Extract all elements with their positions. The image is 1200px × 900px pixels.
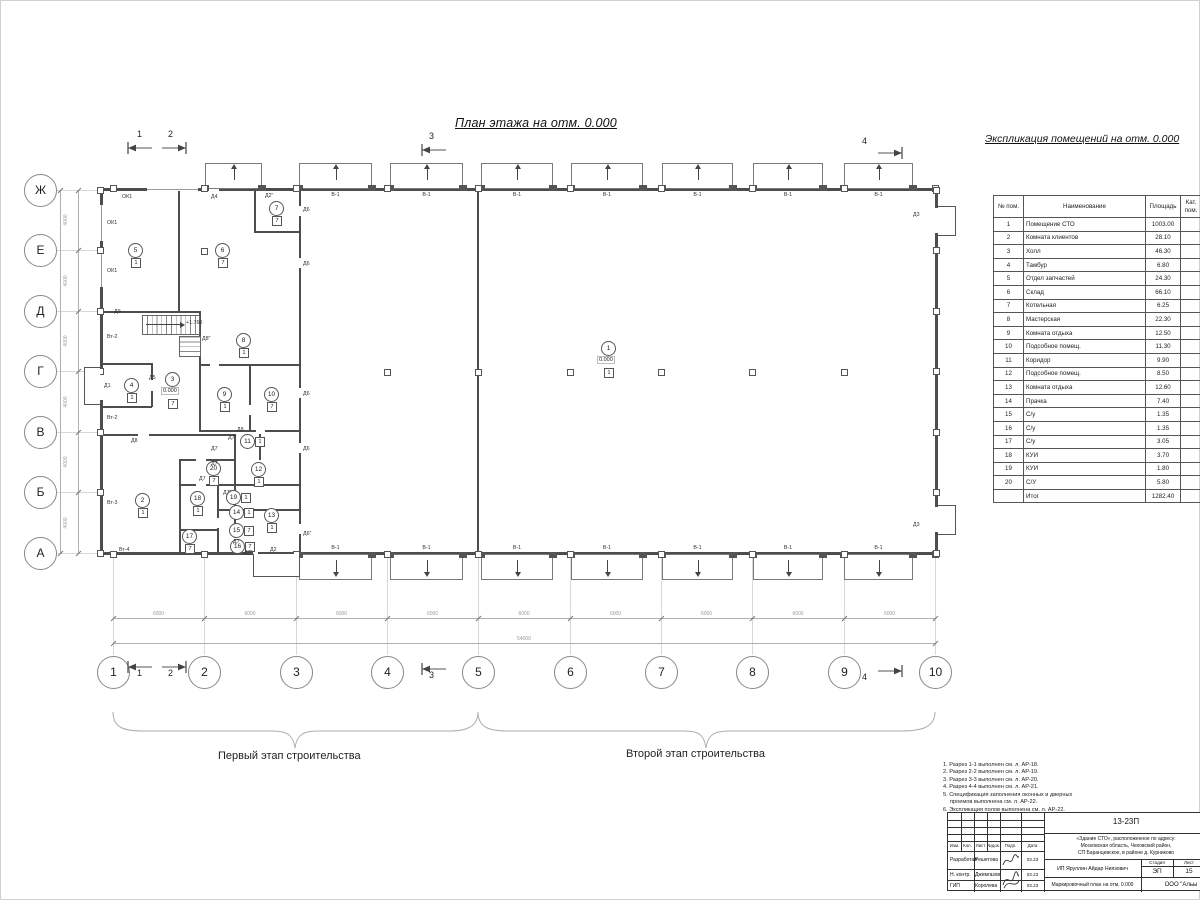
plan-label: ОК1: [107, 268, 117, 274]
dim-line: [60, 190, 61, 553]
tb-date-ncontr: 03.23: [1021, 872, 1044, 877]
tb-object-line1: «Здание СТО», расположенное по адресу:: [1046, 836, 1200, 843]
plan-label: Д6: [303, 261, 310, 267]
gate-arrow: [517, 168, 518, 180]
room-number: 14: [229, 505, 244, 520]
floor-type-mark: 1: [244, 508, 254, 518]
section-marker-label: 3: [429, 131, 434, 141]
axis-grid-line: [478, 556, 479, 655]
tb-project-code: 13-23П: [1044, 817, 1200, 826]
tb-date-gip: 03.23: [1021, 883, 1044, 888]
gate-pier: [639, 185, 647, 191]
wall-segment: [199, 430, 300, 432]
wall-segment: [299, 191, 301, 552]
column-mark: [658, 185, 665, 192]
dim-span-label: 6000: [875, 611, 905, 617]
column-mark: [97, 429, 104, 436]
section-marker-label: 1: [137, 129, 142, 139]
axis-grid-line: [204, 556, 205, 655]
door-opening: [298, 388, 302, 398]
gate-arrow-head: [424, 164, 430, 169]
tb-sheet-label: Лист: [1173, 860, 1200, 865]
gate-pier: [368, 552, 376, 558]
door-opening: [196, 459, 206, 462]
door-opening: [138, 434, 149, 437]
tb-name-gip: Королева: [975, 883, 997, 889]
floor-type-mark: 7: [272, 216, 282, 226]
column-mark: [567, 369, 574, 376]
gate-arrow-head: [424, 572, 430, 577]
column-mark: [841, 369, 848, 376]
axis-bubble-letter: Е: [24, 234, 57, 267]
wall-segment: [254, 231, 300, 233]
dim-span-label: 4000: [63, 329, 69, 353]
wall-segment: [100, 363, 152, 365]
gate-arrow-head: [515, 572, 521, 577]
column-mark: [201, 185, 208, 192]
axis-bubble-number: 2: [188, 656, 221, 689]
room-number: 4: [124, 378, 139, 393]
gate-label: В-1: [869, 192, 889, 198]
gate-label: В-1: [507, 192, 527, 198]
plan-label: +1.760: [186, 320, 202, 326]
column-mark: [97, 308, 104, 315]
room-number: 17: [182, 529, 197, 544]
tb-col-kol: Кол.: [961, 843, 974, 848]
column-mark: [841, 551, 848, 558]
door-opening: [298, 206, 302, 216]
stair-arrow-head: [180, 322, 185, 328]
dim-span-label: 4000: [63, 450, 69, 474]
gate-pier: [729, 185, 737, 191]
dim-span-label: 6000: [601, 611, 631, 617]
gate-arrow: [879, 560, 880, 572]
stage1-label: Первый этап строительства: [218, 750, 361, 762]
plan-label: Д3: [913, 522, 920, 528]
gate-label: В-1: [597, 545, 617, 551]
column-mark: [384, 369, 391, 376]
plan-label: Д7: [211, 461, 218, 467]
room-number: 6: [215, 243, 230, 258]
gate-pier: [258, 185, 266, 191]
plan-label: Д7: [211, 446, 218, 452]
dim-span-label: 6000: [144, 611, 174, 617]
axis-bubble-letter: Ж: [24, 174, 57, 207]
room-number: 18: [190, 491, 205, 506]
floor-type-mark: 1: [127, 393, 137, 403]
floor-type-mark: 1: [131, 258, 141, 268]
plan-label: Д1: [104, 383, 111, 389]
gate-pier: [639, 552, 647, 558]
gate-arrow: [698, 168, 699, 180]
stair-flight: [179, 336, 201, 357]
column-mark: [933, 368, 940, 375]
room-number: 11: [240, 434, 255, 449]
room-number: 10: [264, 387, 279, 402]
gate-pier: [729, 552, 737, 558]
window-line: [147, 189, 198, 190]
room-number: 2: [135, 493, 150, 508]
floor-type-mark: 7: [168, 399, 178, 409]
dim-span-label: 4000: [63, 269, 69, 293]
tb-client: ИП Яруллин Айдар Ниязович: [1044, 866, 1141, 872]
column-mark: [749, 185, 756, 192]
room-number: 13: [264, 508, 279, 523]
gate-arrow-head: [695, 164, 701, 169]
gate-pier: [459, 552, 467, 558]
column-mark: [201, 248, 208, 255]
dim-line: [113, 618, 935, 619]
column-mark: [475, 551, 482, 558]
dim-span-label: 4000: [63, 390, 69, 414]
axis-bubble-letter: А: [24, 537, 57, 570]
dim-span-label: 6000: [692, 611, 722, 617]
axis-bubble-number: 9: [828, 656, 861, 689]
wall-segment: [100, 406, 152, 408]
gate-pier: [549, 185, 557, 191]
gate-label: В-1: [778, 192, 798, 198]
tb-col-podp: Подп.: [1000, 843, 1021, 848]
gate-arrow: [336, 560, 337, 572]
note-item: 2. Разрез 2-2 выполнен см. л. АР-19.: [943, 769, 1077, 776]
column-mark: [97, 187, 104, 194]
axis-bubble-number: 10: [919, 656, 952, 689]
gate-label: В-1: [417, 192, 437, 198]
column-mark: [749, 551, 756, 558]
column-mark: [841, 185, 848, 192]
gate-arrow-head: [605, 572, 611, 577]
drawing-sheet: План этажа на отм. 0.000 Экспликация пом…: [0, 0, 1200, 900]
door-opening: [298, 524, 302, 534]
tb-role-developer: Разработал: [950, 857, 977, 863]
floor-type-mark: 1: [241, 493, 251, 503]
axis-bubble-number: 8: [736, 656, 769, 689]
gate-label: В-1: [326, 545, 346, 551]
floor-type-mark: 1: [604, 368, 614, 378]
dim-span-label: 4000: [63, 511, 69, 535]
tb-stage-label: Стадия: [1141, 860, 1173, 865]
plan-label: Д8: [131, 438, 138, 444]
gate-arrow-head: [333, 164, 339, 169]
axis-bubble-number: 4: [371, 656, 404, 689]
column-mark: [933, 489, 940, 496]
tb-date-developer: 03.23: [1021, 857, 1044, 862]
plan-label: Д6: [303, 446, 310, 452]
gate-arrow: [427, 168, 428, 180]
floor-type-mark: 1: [220, 402, 230, 412]
entrance-porch: [84, 367, 100, 405]
tb-col-data: Дата: [1021, 843, 1044, 848]
door-opening: [298, 258, 302, 268]
column-mark: [475, 185, 482, 192]
signature-ncontr: [1001, 869, 1021, 891]
room-number: 5: [128, 243, 143, 258]
gate-arrow: [517, 560, 518, 572]
plan-label: Д2": [265, 193, 273, 199]
gate-label: В-1: [597, 192, 617, 198]
column-mark: [658, 369, 665, 376]
window-line: [101, 250, 102, 287]
gate-arrow-head: [605, 164, 611, 169]
column-mark: [384, 185, 391, 192]
gate-pier: [459, 185, 467, 191]
gate-arrow: [234, 168, 235, 180]
plan-label: Д7: [199, 476, 206, 482]
window-line: [101, 205, 102, 241]
column-mark: [97, 489, 104, 496]
section-marker: [418, 143, 448, 157]
room-number: 3: [165, 372, 180, 387]
dim-total-label: 54000: [504, 636, 544, 642]
section-marker: [160, 660, 190, 674]
column-mark: [110, 185, 117, 192]
level-mark: 0.000: [597, 356, 615, 364]
gate-arrow: [698, 560, 699, 572]
gate-arrow-head: [786, 572, 792, 577]
column-mark: [933, 247, 940, 254]
section-marker: [876, 664, 906, 678]
plan-label: Д7": [228, 435, 236, 441]
tb-role-ncontr: Н. контр.: [950, 872, 971, 878]
column-mark: [201, 551, 208, 558]
section-marker-label: 4: [862, 672, 867, 682]
floor-type-mark: 7: [209, 476, 219, 486]
gate-arrow: [607, 168, 608, 180]
plan-label: Вт-2: [107, 334, 118, 340]
column-mark: [384, 551, 391, 558]
gate-label: В-1: [688, 545, 708, 551]
gate-arrow: [788, 560, 789, 572]
column-mark: [567, 185, 574, 192]
plan-label: Д2: [270, 547, 277, 553]
dim-span-label: 6000: [418, 611, 448, 617]
axis-bubble-number: 7: [645, 656, 678, 689]
level-mark: 0.000: [161, 387, 179, 395]
gate-label: В-1: [778, 545, 798, 551]
gate-pier: [909, 185, 917, 191]
plan-label: Д9: [114, 309, 121, 315]
tb-object-line2: Московская область, Чеховский район,: [1046, 843, 1200, 849]
column-mark: [933, 308, 940, 315]
gate-label: В-1: [869, 545, 889, 551]
floor-type-mark: 1: [239, 348, 249, 358]
entrance-porch: [938, 206, 956, 236]
plan-label: Д8": [202, 336, 210, 342]
notes-list: 1. Разрез 1-1 выполнен см. л. АР-18.2. Р…: [943, 762, 1077, 814]
room-number: 7: [269, 201, 284, 216]
signature-developer: [1001, 853, 1021, 868]
gate-arrow-head: [515, 164, 521, 169]
dim-span-label: 4000: [63, 208, 69, 232]
room-number: 1: [601, 341, 616, 356]
floor-type-mark: 1: [267, 523, 277, 533]
column-mark: [293, 185, 300, 192]
gate-arrow-head: [786, 164, 792, 169]
gate-pier: [368, 185, 376, 191]
section-marker-label: 2: [168, 129, 173, 139]
plan-label: Вт-4: [119, 547, 130, 553]
gate-pier: [819, 185, 827, 191]
section-marker: [876, 146, 906, 160]
gate-arrow: [336, 168, 337, 180]
gate-pier: [549, 552, 557, 558]
room-number: 12: [251, 462, 266, 477]
dim-line: [113, 643, 935, 644]
note-item: 3. Разрез 3-3 выполнен см. л. АР-20.: [943, 777, 1077, 784]
axis-bubble-letter: Б: [24, 476, 57, 509]
wall-segment: [179, 459, 236, 461]
tb-sheet-value: 15: [1173, 868, 1200, 875]
axis-bubble-letter: В: [24, 416, 57, 449]
plan-label: Д5: [149, 375, 156, 381]
door-opening: [256, 430, 265, 433]
wall-segment: [100, 434, 235, 436]
gate-label: В-1: [326, 192, 346, 198]
gate-arrow: [788, 168, 789, 180]
door-opening: [298, 443, 302, 453]
dim-span-label: 6000: [783, 611, 813, 617]
plan-label: Д7": [244, 550, 252, 556]
tb-name-ncontr: Джемгазов: [975, 872, 1000, 878]
gate-arrow-head: [333, 572, 339, 577]
section-marker-label: 2: [168, 668, 173, 678]
gate-pier: [909, 552, 917, 558]
door-opening: [210, 364, 219, 367]
gate-label: В-1: [688, 192, 708, 198]
plan-label: Д6": [303, 531, 311, 537]
title-block: Изм. Кол. Лист №док. Подп. Дата Разработ…: [947, 812, 1200, 891]
gate-arrow: [607, 560, 608, 572]
tb-name-developer: Решетова: [975, 857, 998, 863]
tb-col-izm: Изм.: [948, 843, 961, 848]
column-mark: [567, 551, 574, 558]
column-mark: [933, 187, 940, 194]
note-item: 5. Спецификация заполнения оконных и две…: [943, 792, 1077, 807]
column-mark: [749, 369, 756, 376]
entrance-porch: [253, 554, 300, 577]
floor-type-mark: 1: [254, 477, 264, 487]
axis-grid-line: [113, 556, 114, 655]
section-marker-label: 4: [862, 136, 867, 146]
dim-span-label: 6000: [327, 611, 357, 617]
gate-label: В-1: [507, 545, 527, 551]
section-marker: [124, 141, 154, 155]
room-number: 9: [217, 387, 232, 402]
door-opening: [248, 405, 252, 415]
axis-bubble-number: 3: [280, 656, 313, 689]
floor-type-mark: 1: [255, 437, 265, 447]
plan-label: Д8: [237, 427, 244, 433]
gate-pier: [819, 552, 827, 558]
note-item: 4. Разрез 4-4 выполнен см. л. АР-21.: [943, 784, 1077, 791]
plan-label: ОК1: [122, 194, 132, 200]
plan-label: Д6: [303, 391, 310, 397]
plan-label: Д4: [211, 194, 218, 200]
gate-arrow-head: [231, 164, 237, 169]
tb-col-list: Лист: [974, 843, 987, 848]
stage2-label: Второй этап строительства: [626, 748, 765, 760]
wall-segment: [179, 459, 181, 553]
floor-type-mark: 7: [185, 544, 195, 554]
door-opening: [216, 518, 220, 528]
plan-label: Вт-3: [107, 500, 118, 506]
room-number: 8: [236, 333, 251, 348]
gate-label: В-1: [417, 545, 437, 551]
floor-type-mark: 7: [267, 402, 277, 412]
column-mark: [97, 247, 104, 254]
tb-role-gip: ГИП: [950, 883, 960, 889]
column-mark: [933, 429, 940, 436]
axis-grid-line: [935, 556, 936, 655]
wall-segment: [254, 191, 256, 233]
tb-stage-value: ЭП: [1141, 868, 1173, 875]
section-marker-label: 3: [429, 670, 434, 680]
section-marker: [160, 141, 190, 155]
plan-label: Вт-2: [107, 415, 118, 421]
axis-grid-line: [387, 556, 388, 655]
axis-bubble-letter: Г: [24, 355, 57, 388]
column-mark: [97, 550, 104, 557]
tb-col-ndok: №док.: [987, 843, 1000, 848]
gate-arrow: [427, 560, 428, 572]
tb-doc-title: Маркировочный план на отм. 0.000: [1046, 882, 1139, 888]
gate-arrow-head: [695, 572, 701, 577]
column-mark: [475, 369, 482, 376]
wall-segment: [151, 391, 153, 407]
floor-type-mark: 1: [193, 506, 203, 516]
plan-label: Д7": [223, 490, 231, 496]
axis-bubble-letter: Д: [24, 295, 57, 328]
entrance-porch: [938, 505, 956, 535]
column-mark: [110, 551, 117, 558]
floor-type-mark: 7: [218, 258, 228, 268]
tb-object-line3: СП Баранцевское, в районе д. Курниково: [1046, 850, 1200, 856]
wall-segment: [178, 191, 180, 312]
gate-arrow-head: [876, 572, 882, 577]
note-item: 1. Разрез 1-1 выполнен см. л. АР-18.: [943, 762, 1077, 769]
column-mark: [658, 551, 665, 558]
plan-label: ОК1: [107, 220, 117, 226]
axis-bubble-number: 6: [554, 656, 587, 689]
gate-arrow-head: [876, 164, 882, 169]
axis-bubble-number: 5: [462, 656, 495, 689]
room-number: 15: [229, 523, 244, 538]
door-opening: [196, 484, 206, 487]
plan-label: Д6: [303, 207, 310, 213]
dim-span-label: 6000: [235, 611, 265, 617]
floor-type-mark: 7: [244, 526, 254, 536]
stair-arrow: [146, 324, 182, 325]
plan-label: Д3: [913, 212, 920, 218]
wall-segment: [249, 364, 251, 431]
gate-arrow: [879, 168, 880, 180]
section-marker-label: 1: [137, 668, 142, 678]
plan-label: Д7: [233, 539, 240, 545]
dim-span-label: 6000: [509, 611, 539, 617]
tb-company: ООО "Альы: [1141, 882, 1200, 888]
floor-type-mark: 1: [138, 508, 148, 518]
column-mark: [933, 550, 940, 557]
